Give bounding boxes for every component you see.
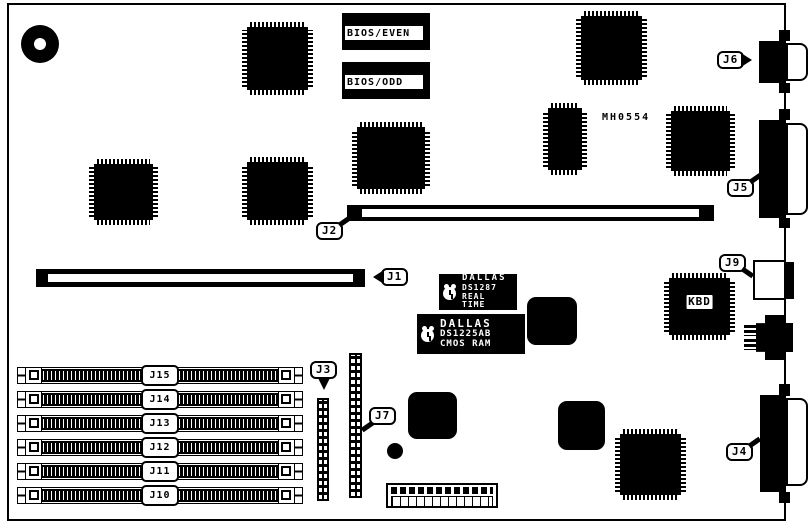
callout-j6: J6 bbox=[717, 51, 744, 69]
pin-header-j3 bbox=[317, 398, 329, 501]
qfp-chip bbox=[548, 108, 582, 170]
board-part-number: MH0554 bbox=[602, 112, 650, 123]
simm-slot-j12: J12 bbox=[17, 439, 303, 456]
bios-even-chip: BIOS/EVEN bbox=[342, 13, 430, 50]
simm-slot-j14: J14 bbox=[17, 391, 303, 408]
bios-odd-label: BIOS/ODD bbox=[345, 75, 423, 89]
j6-port-shell bbox=[786, 43, 808, 81]
simm-slot-j11: J11 bbox=[17, 463, 303, 480]
simm-label: J11 bbox=[141, 461, 179, 482]
alarm-clock-icon bbox=[420, 326, 437, 343]
din-edge-tab bbox=[786, 323, 793, 352]
plcc-chip bbox=[527, 297, 577, 345]
simm-label: J10 bbox=[141, 485, 179, 506]
card-slot-j1 bbox=[36, 269, 365, 287]
simm-slot-j13: J13 bbox=[17, 415, 303, 432]
qfp-chip bbox=[620, 434, 681, 495]
power-connector bbox=[386, 483, 498, 508]
bios-odd-chip: BIOS/ODD bbox=[342, 62, 430, 99]
connector-mount-tab bbox=[779, 492, 790, 503]
qfp-chip bbox=[94, 164, 153, 220]
connector-mount-tab bbox=[779, 109, 790, 120]
simm-label: J14 bbox=[141, 389, 179, 410]
card-slot-j2 bbox=[347, 205, 714, 221]
motherboard-diagram: KBD BIOS/EVEN BIOS/ODD MH0554 DALLAS DS1… bbox=[0, 0, 808, 527]
bios-even-label: BIOS/EVEN bbox=[345, 26, 423, 40]
j9-edge-tab bbox=[786, 262, 794, 299]
nvram-chip: DALLAS DS1225AB CMOS RAM bbox=[417, 314, 525, 354]
callout-j3: J3 bbox=[310, 361, 337, 379]
callout-j2: J2 bbox=[316, 222, 343, 240]
nvram-type: CMOS RAM bbox=[440, 340, 492, 350]
mounting-hole bbox=[21, 25, 59, 63]
qfp-chip bbox=[247, 162, 308, 220]
callout-j7: J7 bbox=[369, 407, 396, 425]
kbd-label: KBD bbox=[684, 293, 715, 311]
alarm-clock-icon bbox=[442, 284, 459, 301]
simm-label: J13 bbox=[141, 413, 179, 434]
serial-connector-j6 bbox=[759, 41, 786, 83]
j5-port-shell bbox=[786, 123, 808, 215]
callout-j9: J9 bbox=[719, 254, 746, 272]
callout-j4: J4 bbox=[726, 443, 753, 461]
connector-j4 bbox=[760, 395, 786, 492]
piezo-speaker bbox=[387, 443, 403, 459]
simm-slot-j10: J10 bbox=[17, 487, 303, 504]
plcc-chip bbox=[408, 392, 457, 439]
j4-port-shell bbox=[786, 398, 808, 486]
simm-slot-j15: J15 bbox=[17, 367, 303, 384]
rtc-chip: DALLAS DS1287 REAL TIME bbox=[439, 274, 517, 310]
simm-label: J15 bbox=[141, 365, 179, 386]
parallel-connector-j5 bbox=[759, 120, 786, 218]
connector-mount-tab bbox=[779, 218, 790, 228]
qfp-chip bbox=[581, 16, 642, 80]
qfp-chip bbox=[671, 111, 730, 171]
keyboard-controller-chip: KBD bbox=[669, 278, 730, 335]
din-plug bbox=[744, 325, 756, 336]
callout-j1: J1 bbox=[381, 268, 408, 286]
pin-header-j7 bbox=[349, 353, 362, 498]
connector-mount-tab bbox=[779, 83, 790, 93]
rtc-type: REAL TIME bbox=[462, 293, 514, 310]
din-plug bbox=[744, 339, 756, 350]
simm-label: J12 bbox=[141, 437, 179, 458]
callout-j5: J5 bbox=[727, 179, 754, 197]
connector-mount-tab bbox=[779, 30, 790, 41]
qfp-chip bbox=[357, 127, 425, 189]
qfp-chip bbox=[247, 27, 308, 90]
keyboard-connector-j9 bbox=[753, 260, 786, 300]
plcc-chip bbox=[558, 401, 605, 450]
